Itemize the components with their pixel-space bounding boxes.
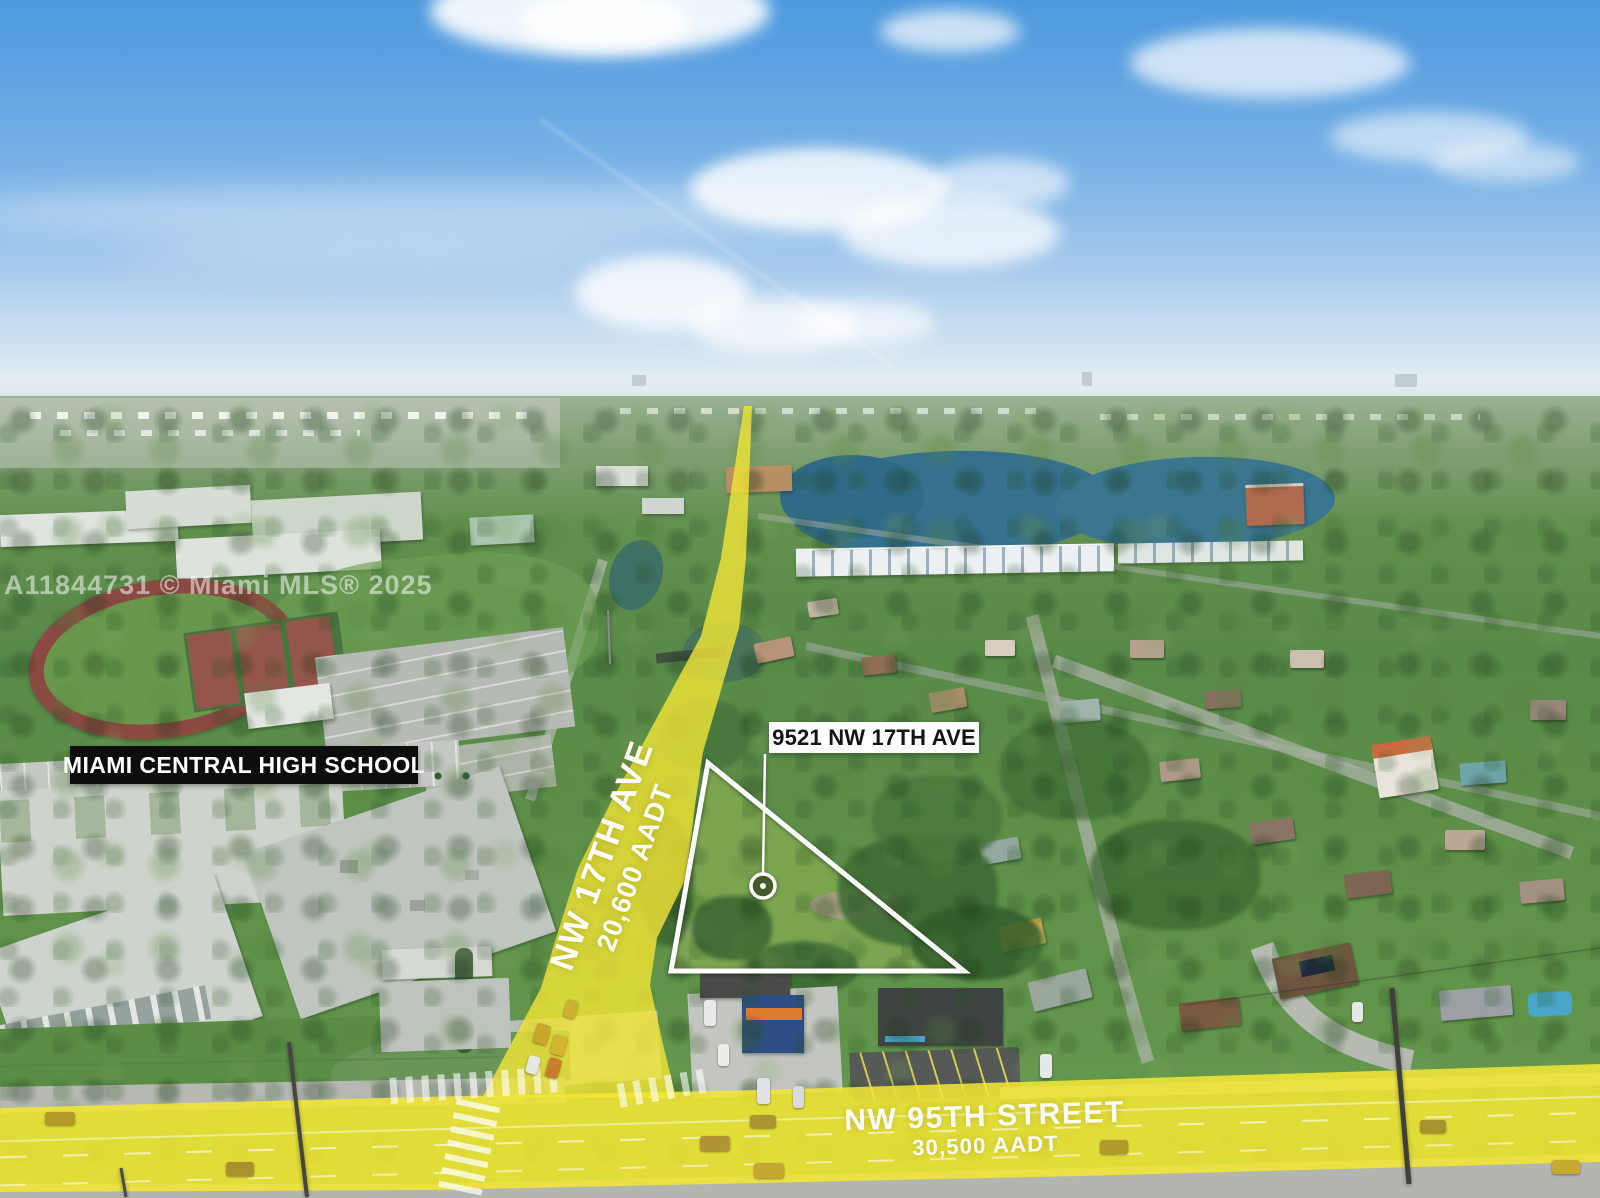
tree-canopy bbox=[912, 906, 1042, 980]
school-label: MIAMI CENTRAL HIGH SCHOOL bbox=[70, 746, 418, 784]
car bbox=[1040, 1054, 1052, 1078]
house-roof bbox=[861, 654, 897, 675]
rooftop-unit bbox=[340, 860, 358, 873]
cloud-wisp bbox=[120, 238, 640, 270]
car bbox=[700, 1136, 730, 1151]
tree-canopy bbox=[1090, 820, 1260, 930]
storefront-glass bbox=[885, 1036, 925, 1042]
warehouse-row bbox=[30, 412, 530, 419]
tree-canopy bbox=[1000, 720, 1150, 820]
house-roof bbox=[1459, 760, 1506, 785]
nw-95th-street-label: NW 95TH STREET 30,500 AADT bbox=[819, 1095, 1151, 1164]
commercial-building bbox=[596, 466, 648, 486]
orange-awning bbox=[746, 1008, 802, 1020]
cloud bbox=[1430, 142, 1580, 182]
property-address-label: 9521 NW 17TH AVE bbox=[769, 722, 979, 753]
red-roof-building bbox=[1245, 483, 1304, 526]
school-building bbox=[125, 485, 252, 529]
corner-building bbox=[382, 946, 493, 980]
mls-watermark: A11844731 © Miami MLS® 2025 bbox=[4, 570, 433, 601]
car bbox=[757, 1078, 770, 1104]
house-roof bbox=[985, 640, 1015, 656]
swimming-pool bbox=[1527, 991, 1572, 1017]
tile-roof-condo bbox=[1371, 736, 1439, 799]
car bbox=[718, 1044, 729, 1066]
cloud bbox=[880, 10, 1020, 52]
house-roof bbox=[1130, 640, 1164, 658]
property-address-text: 9521 NW 17TH AVE bbox=[772, 725, 976, 751]
warehouse-row bbox=[1100, 414, 1480, 420]
condo-building bbox=[1118, 540, 1303, 563]
car bbox=[1352, 1002, 1363, 1022]
rooftop-unit bbox=[410, 900, 425, 911]
house-roof bbox=[1290, 650, 1324, 668]
warehouse-row bbox=[60, 430, 360, 436]
truck bbox=[704, 1000, 716, 1026]
house-roof bbox=[1530, 700, 1566, 720]
house-roof bbox=[1445, 830, 1485, 850]
cloud bbox=[795, 300, 935, 345]
car bbox=[1552, 1160, 1580, 1174]
car bbox=[226, 1162, 254, 1176]
corner-lot bbox=[379, 978, 511, 1052]
car bbox=[1420, 1120, 1446, 1133]
school-building bbox=[469, 514, 534, 545]
car bbox=[45, 1112, 75, 1125]
commercial-building bbox=[642, 498, 684, 514]
house-roof bbox=[1159, 758, 1201, 782]
car bbox=[754, 1163, 784, 1178]
tree-canopy bbox=[872, 776, 1002, 860]
cloud bbox=[840, 198, 1060, 268]
distant-building bbox=[632, 375, 646, 386]
cloud bbox=[1130, 28, 1410, 98]
condo-building bbox=[796, 543, 1114, 577]
car bbox=[793, 1086, 804, 1108]
aerial-listing-photo: A11844731 © Miami MLS® 2025 MIAMI CENTRA… bbox=[0, 0, 1600, 1198]
warehouse-row bbox=[620, 408, 1040, 414]
gas-station-building bbox=[742, 995, 804, 1053]
house-roof bbox=[1439, 985, 1513, 1021]
cloud bbox=[930, 158, 1070, 208]
car bbox=[750, 1115, 776, 1128]
house-roof bbox=[1519, 878, 1565, 904]
house-roof bbox=[1204, 689, 1241, 709]
distant-building bbox=[1082, 372, 1092, 386]
distant-building bbox=[1395, 374, 1417, 387]
rooftop-unit bbox=[465, 870, 479, 880]
school-label-text: MIAMI CENTRAL HIGH SCHOOL bbox=[63, 752, 425, 779]
